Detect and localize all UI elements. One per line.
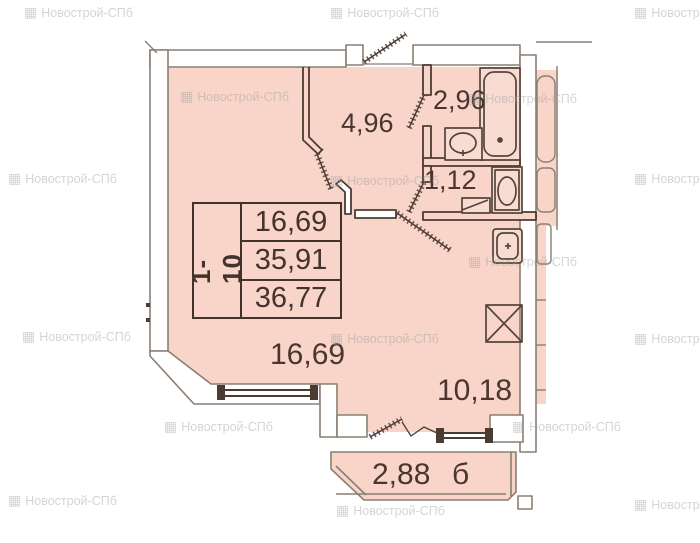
top-wall-left xyxy=(150,50,346,67)
living-window-cap xyxy=(218,386,224,399)
building-icon: ▦ xyxy=(634,498,647,512)
watermark: ▦Новострой-СПб xyxy=(24,6,133,20)
watermark: ▦Новострой-СПб xyxy=(180,90,289,104)
building-icon: ▦ xyxy=(336,504,349,518)
bathtub-icon xyxy=(480,68,520,160)
watermark: ▦Новострой-СПб xyxy=(634,6,700,20)
wall-joint-dot xyxy=(146,303,150,307)
apartment-range: 1-10 xyxy=(186,238,248,284)
watermark: ▦Новострой-СПб xyxy=(512,420,621,434)
building-icon: ▦ xyxy=(8,172,21,186)
watermark: ▦Новострой-СПб xyxy=(22,330,131,344)
watermark: ▦Новострой-СПб xyxy=(634,172,700,186)
building-icon: ▦ xyxy=(330,6,343,20)
kitchen-area-label: 10,18 xyxy=(437,376,512,406)
apartment-range-cell: 1-10 xyxy=(194,204,242,317)
watermark: ▦Новострой-СПб xyxy=(634,498,700,512)
floor-plan-drawing xyxy=(0,0,700,543)
entrance-jamb xyxy=(346,45,363,65)
watermark: ▦Новострой-СПб xyxy=(8,494,117,508)
area-info-table: 1-10 16,69 35,91 36,77 xyxy=(192,202,342,319)
kitchen-window-cap xyxy=(437,429,443,442)
building-icon: ▦ xyxy=(330,332,343,346)
top-wall-right xyxy=(413,45,520,65)
bathroom-wall xyxy=(423,65,431,95)
watermark: ▦Новострой-СПб xyxy=(336,504,445,518)
left-wall xyxy=(150,50,168,351)
area-without-balcony-value: 35,91 xyxy=(242,242,340,280)
building-icon: ▦ xyxy=(24,6,37,20)
watermark: ▦Новострой-СПб xyxy=(164,420,273,434)
building-icon: ▦ xyxy=(468,255,481,269)
building-icon: ▦ xyxy=(512,420,525,434)
room-door-leaf xyxy=(355,210,396,218)
building-icon: ▦ xyxy=(22,330,35,344)
bathroom-wall xyxy=(423,126,431,160)
watermark: ▦Новострой-СПб xyxy=(330,174,439,188)
balcony-corner-post xyxy=(518,496,532,509)
watermark: ▦Новострой-СПб xyxy=(330,332,439,346)
building-icon: ▦ xyxy=(634,6,647,20)
total-area-value: 36,77 xyxy=(242,281,340,317)
shelf-icon xyxy=(462,198,490,213)
building-icon: ▦ xyxy=(468,92,481,106)
watermark: ▦Новострой-СПб xyxy=(330,6,439,20)
step-wall xyxy=(320,384,337,437)
living-area-value: 16,69 xyxy=(242,204,340,242)
bathroom-sink-icon xyxy=(445,128,482,160)
floor-plan-page: 4,96 2,96 1,12 16,69 10,18 2,88 б 1-10 1… xyxy=(0,0,700,543)
balcony-letter-label: б xyxy=(452,460,469,490)
building-icon: ▦ xyxy=(8,494,21,508)
living-window-cap xyxy=(311,386,317,399)
toilet-icon xyxy=(492,167,522,213)
watermark: ▦Новострой-СПб xyxy=(634,332,700,346)
area-values-column: 16,69 35,91 36,77 xyxy=(242,204,340,317)
watermark: ▦Новострой-СПб xyxy=(8,172,117,186)
watermark: ▦Новострой-СПб xyxy=(468,92,577,106)
watermark: ▦Новострой-СПб xyxy=(468,255,577,269)
wall-joint-dot xyxy=(146,318,150,322)
kitchen-window-cap xyxy=(486,429,492,442)
kitchen-bottom-wall-left xyxy=(337,415,367,437)
building-icon: ▦ xyxy=(634,332,647,346)
balcony-area-label: 2,88 xyxy=(372,460,430,490)
building-icon: ▦ xyxy=(164,420,177,434)
building-icon: ▦ xyxy=(634,172,647,186)
building-icon: ▦ xyxy=(180,90,193,104)
hallway-area-label: 4,96 xyxy=(341,110,394,137)
building-icon: ▦ xyxy=(330,174,343,188)
entrance-door xyxy=(364,34,406,62)
